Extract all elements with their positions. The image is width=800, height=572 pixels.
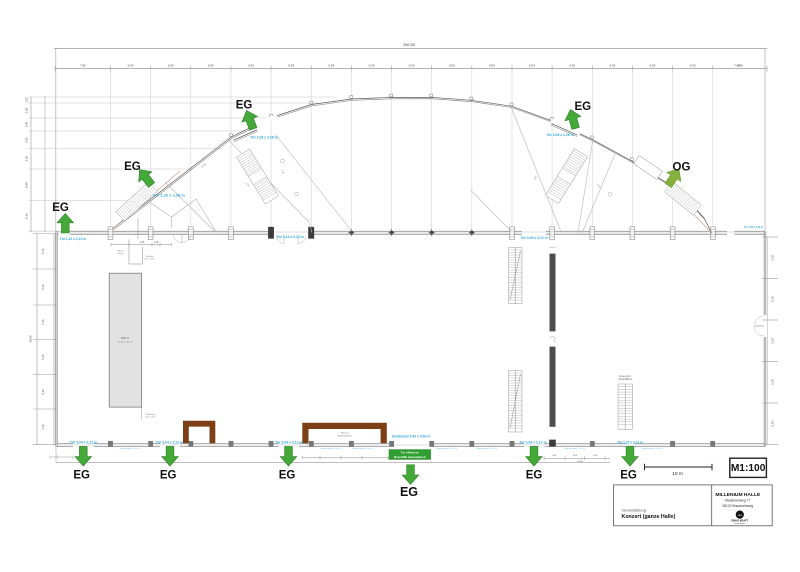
svg-text:5,93: 5,93 bbox=[569, 63, 575, 67]
svg-text:5,93: 5,93 bbox=[328, 63, 334, 67]
svg-text:10 m: 10 m bbox=[672, 471, 683, 477]
svg-text:Tür 3,04 x 2,12 m: Tür 3,04 x 2,12 m bbox=[156, 441, 183, 445]
svg-text:5,93: 5,93 bbox=[489, 63, 495, 67]
svg-text:Tür 3,26 x 2,26 m: Tür 3,26 x 2,26 m bbox=[546, 133, 573, 137]
svg-text:5,93: 5,93 bbox=[690, 63, 696, 67]
svg-text:OG: OG bbox=[673, 162, 691, 174]
svg-text:EG: EG bbox=[124, 161, 141, 173]
svg-text:5,00: 5,00 bbox=[25, 155, 29, 161]
svg-text:5,93: 5,93 bbox=[650, 63, 656, 67]
svg-text:5,93: 5,93 bbox=[248, 63, 254, 67]
svg-text:6,19: 6,19 bbox=[771, 296, 775, 302]
svg-text:38120 Braunschweig: 38120 Braunschweig bbox=[722, 504, 753, 508]
svg-text:5,93: 5,93 bbox=[529, 63, 535, 67]
svg-text:Konzert (ganze Halle): Konzert (ganze Halle) bbox=[622, 514, 676, 520]
svg-text:3,40: 3,40 bbox=[25, 121, 29, 127]
svg-text:Absperrgitter 3,00 m: Absperrgitter 3,00 m bbox=[565, 447, 585, 450]
svg-text:6,19: 6,19 bbox=[771, 255, 775, 261]
svg-text:6,19: 6,19 bbox=[771, 421, 775, 427]
svg-text:Tür 3,26 x 2,26 m: Tür 3,26 x 2,26 m bbox=[250, 136, 277, 140]
svg-text:100,93: 100,93 bbox=[403, 43, 415, 47]
svg-text:14,88: 14,88 bbox=[577, 461, 583, 463]
svg-text:EG: EG bbox=[526, 470, 543, 482]
svg-text:Schiebetor 5,40 x 4,50 m: Schiebetor 5,40 x 4,50 m bbox=[392, 434, 430, 438]
svg-text:Brandfall automatisch: Brandfall automatisch bbox=[394, 455, 426, 459]
svg-text:5,16: 5,16 bbox=[41, 389, 45, 395]
svg-text:4,30: 4,30 bbox=[25, 137, 29, 143]
svg-text:aufstellfläche: aufstellfläche bbox=[618, 378, 633, 381]
svg-text:5,93: 5,93 bbox=[208, 63, 214, 67]
svg-text:Tür 1,35 x 2,26 m: Tür 1,35 x 2,26 m bbox=[744, 226, 763, 229]
svg-text:EG: EG bbox=[620, 470, 637, 482]
svg-text:5,93: 5,93 bbox=[369, 63, 375, 67]
svg-text:5,93: 5,93 bbox=[168, 63, 174, 67]
svg-text:4,15: 4,15 bbox=[140, 242, 145, 244]
svg-text:1,46: 1,46 bbox=[154, 242, 159, 244]
svg-text:5,93: 5,93 bbox=[288, 63, 294, 67]
svg-text:Absperrgitter 3,00 m: Absperrgitter 3,00 m bbox=[353, 447, 373, 450]
svg-text:0,80 x 0,60 m: 0,80 x 0,60 m bbox=[145, 417, 156, 419]
svg-text:EG: EG bbox=[279, 470, 296, 482]
svg-text:EG: EG bbox=[52, 202, 69, 214]
svg-text:2,00 x 1,00 m: 2,00 x 1,00 m bbox=[144, 259, 155, 261]
svg-text:Tür 3,04 x 2,12 m: Tür 3,04 x 2,12 m bbox=[519, 441, 546, 445]
svg-text:Platz für: Platz für bbox=[341, 432, 349, 435]
svg-text:5,16: 5,16 bbox=[41, 354, 45, 360]
svg-text:5,93: 5,93 bbox=[409, 63, 415, 67]
svg-text:Veranstaltung: Veranstaltung bbox=[622, 508, 646, 513]
svg-text:7,82: 7,82 bbox=[80, 63, 86, 67]
svg-text:EWAG KRAFT: EWAG KRAFT bbox=[731, 520, 748, 523]
svg-text:6,19: 6,19 bbox=[771, 338, 775, 344]
svg-text:aus der Region: aus der Region bbox=[734, 523, 745, 525]
svg-text:Absperrgitter 3,00 m: Absperrgitter 3,00 m bbox=[321, 447, 341, 450]
svg-text:5,93: 5,93 bbox=[128, 63, 134, 67]
svg-text:Tür 2,26 x 2,26 m: Tür 2,26 x 2,26 m bbox=[153, 192, 186, 197]
svg-text:15,00 x 8,00 m: 15,00 x 8,00 m bbox=[118, 342, 133, 344]
svg-text:Absperrgitter 3,00 m: Absperrgitter 3,00 m bbox=[477, 447, 497, 450]
svg-text:Madamenweg 77: Madamenweg 77 bbox=[725, 499, 750, 503]
svg-text:anlage: anlage bbox=[118, 253, 123, 255]
svg-text:5,93: 5,93 bbox=[449, 63, 455, 67]
svg-text:Absperrgitter 3,00 m: Absperrgitter 3,00 m bbox=[642, 447, 662, 450]
svg-text:Absperrgitter 3,00 m: Absperrgitter 3,00 m bbox=[120, 447, 140, 450]
svg-text:MILLENIUM HALLE: MILLENIUM HALLE bbox=[715, 492, 761, 498]
svg-text:Tür 3,09 x 2,12 m: Tür 3,09 x 2,12 m bbox=[520, 236, 547, 240]
svg-text:Tür 1,24 x 2,12 m: Tür 1,24 x 2,12 m bbox=[617, 441, 643, 445]
svg-text:5,16: 5,16 bbox=[41, 284, 45, 290]
svg-text:6,19: 6,19 bbox=[771, 379, 775, 385]
svg-text:1,35: 1,35 bbox=[25, 97, 29, 103]
svg-text:5,16: 5,16 bbox=[41, 319, 45, 325]
svg-text:8,48: 8,48 bbox=[25, 182, 29, 188]
svg-text:EG: EG bbox=[236, 100, 253, 112]
svg-text:Rednerpult: Rednerpult bbox=[146, 413, 156, 416]
svg-text:EG: EG bbox=[160, 470, 177, 482]
svg-text:Bühne: Bühne bbox=[121, 336, 130, 340]
svg-text:8,16: 8,16 bbox=[25, 213, 29, 219]
svg-text:Absperrgitter 3,00 m: Absperrgitter 3,00 m bbox=[437, 447, 457, 450]
svg-text:7,08: 7,08 bbox=[734, 63, 740, 67]
svg-text:28,88: 28,88 bbox=[29, 335, 33, 342]
svg-text:EG: EG bbox=[574, 101, 591, 113]
svg-text:EG: EG bbox=[400, 485, 418, 499]
svg-text:5,16: 5,16 bbox=[41, 424, 45, 430]
svg-text:EG: EG bbox=[73, 470, 90, 482]
svg-text:Tür 3,04 x 2,12 m: Tür 3,04 x 2,12 m bbox=[275, 441, 302, 445]
svg-text:2,92: 2,92 bbox=[25, 107, 29, 113]
svg-text:5,16: 5,16 bbox=[41, 248, 45, 254]
svg-text:Tür 3,04 x 2,12 m: Tür 3,04 x 2,12 m bbox=[70, 441, 97, 445]
svg-text:Tür 3,44 x 2,12 m: Tür 3,44 x 2,12 m bbox=[276, 235, 303, 239]
svg-text:M1:100: M1:100 bbox=[731, 463, 766, 474]
svg-text:5,93: 5,93 bbox=[609, 63, 615, 67]
svg-text:Rollstuhlfahrer: Rollstuhlfahrer bbox=[338, 435, 352, 438]
svg-text:Tür 1,20 x 2,12 m: Tür 1,20 x 2,12 m bbox=[60, 237, 87, 241]
